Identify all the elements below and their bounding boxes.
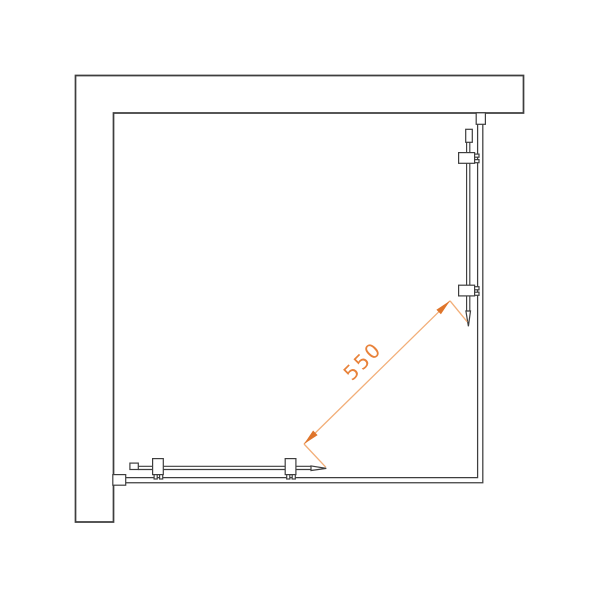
bracket-tab [154,475,157,479]
plan-drawing-svg: 550 [0,0,600,600]
bottom-door-roller-bracket [285,459,296,479]
dimension-550: 550 [304,301,467,467]
right-door-roller-bracket [459,153,479,164]
dimension-witness-line [304,444,326,467]
bottom-door-end-cap [130,463,138,469]
dimension-line [304,301,450,444]
bracket-body [459,153,475,164]
right-panel-wall-bracket [476,113,485,125]
bottom-panel-wall-bracket [113,475,126,486]
right-door-panel [459,129,479,326]
technical-drawing-canvas: 550 [0,0,600,600]
bracket-body [459,285,475,296]
bottom-door-roller-bracket [153,459,164,479]
bracket-body [285,459,296,475]
fixed-panel-inner-line [126,124,478,477]
dimension-label: 550 [338,337,386,385]
bracket-tab [475,160,479,163]
right-door-end-cap [466,129,473,142]
dimension-witness-line [450,301,467,322]
bracket-tab [475,154,479,157]
bracket-tab [475,292,479,295]
fixed-panel-outer-line [126,124,483,483]
bottom-door-tip [311,466,326,471]
bracket-tab [475,287,479,290]
bracket-tab [287,475,290,479]
right-door-tip [466,311,471,326]
bracket-tab [160,475,163,479]
bottom-door-panel [130,459,326,479]
fixed-glass-panels [126,124,483,483]
bracket-tab [292,475,295,479]
bracket-body [153,459,164,475]
wall-l-shape [76,76,524,523]
right-door-roller-bracket [459,285,479,296]
